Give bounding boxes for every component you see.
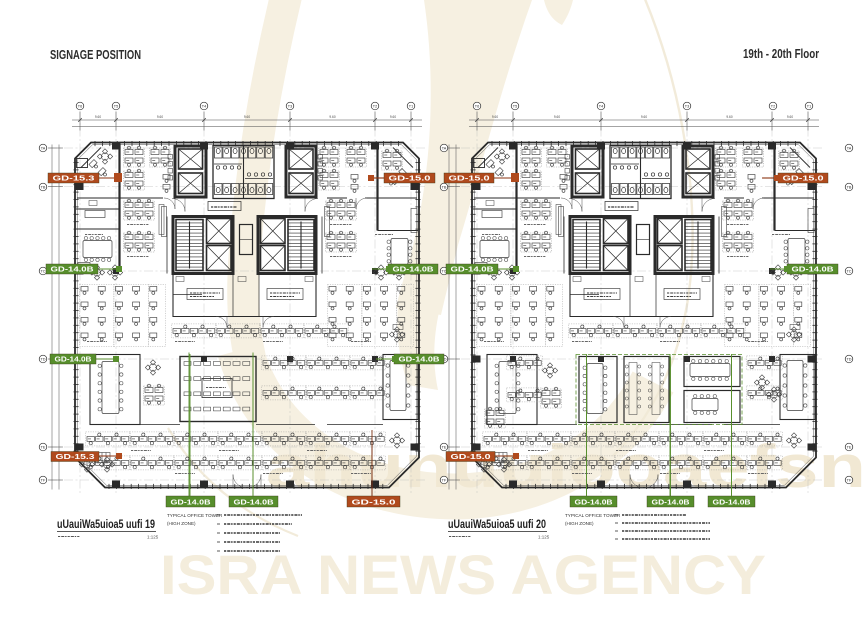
svg-text:T5: T5 <box>114 105 118 109</box>
svg-text:GD-14.0B: GD-14.0B <box>451 264 494 273</box>
svg-text:TB: TB <box>442 186 447 190</box>
svg-text:TYPICAL OFFICE TOWER: TYPICAL OFFICE TOWER <box>167 513 223 518</box>
svg-text:TF: TF <box>847 479 852 483</box>
svg-text:TYPICAL OFFICE TOWER: TYPICAL OFFICE TOWER <box>565 513 621 518</box>
svg-text:T6: T6 <box>78 105 82 109</box>
svg-text:GD-14.0B: GD-14.0B <box>393 264 434 273</box>
svg-text:GD-14.0B: GD-14.0B <box>234 497 274 506</box>
svg-text:19th - 20th Floor: 19th - 20th Floor <box>743 47 819 61</box>
svg-text:uUauiWa5uioa5 uufi 19: uUauiWa5uioa5 uufi 19 <box>57 519 155 531</box>
svg-text:T2: T2 <box>373 105 377 109</box>
svg-text:9.60: 9.60 <box>641 115 647 119</box>
svg-text:TC: TC <box>40 270 45 274</box>
svg-text:T1: T1 <box>807 105 811 109</box>
svg-text:GD-14.0B: GD-14.0B <box>792 264 834 273</box>
svg-text:TF: TF <box>41 479 46 483</box>
svg-text:9.60: 9.60 <box>244 115 250 119</box>
svg-text:SIGNAGE POSITION: SIGNAGE POSITION <box>50 47 141 62</box>
svg-text:T3: T3 <box>685 105 689 109</box>
svg-text:T5: T5 <box>513 105 517 109</box>
svg-text:(HIGH ZONE): (HIGH ZONE) <box>565 521 594 526</box>
svg-text:TA: TA <box>847 147 852 151</box>
svg-text:TB: TB <box>847 186 852 190</box>
svg-text:1:125: 1:125 <box>147 535 159 540</box>
svg-text:T3: T3 <box>288 105 292 109</box>
svg-text:T4: T4 <box>599 105 603 109</box>
svg-text:GD-14.0B: GD-14.0B <box>713 497 751 506</box>
svg-text:GD-14.0B: GD-14.0B <box>55 354 92 363</box>
svg-text:1:125: 1:125 <box>538 535 550 540</box>
svg-text:GD-14.0B: GD-14.0B <box>652 497 690 506</box>
svg-text:TE: TE <box>442 446 447 450</box>
svg-text:TB: TB <box>41 186 46 190</box>
svg-text:9.60: 9.60 <box>95 115 101 119</box>
svg-text:GD-14.0B: GD-14.0B <box>171 497 211 506</box>
svg-text:TE: TE <box>41 446 46 450</box>
svg-text:GD-15.3: GD-15.3 <box>53 173 95 182</box>
svg-text:9.60: 9.60 <box>554 115 560 119</box>
svg-text:9.60: 9.60 <box>492 115 498 119</box>
svg-text:9.60: 9.60 <box>390 115 396 119</box>
svg-text:T4: T4 <box>202 105 206 109</box>
svg-text:T2: T2 <box>771 105 775 109</box>
svg-text:GD-15.0: GD-15.0 <box>352 497 396 506</box>
svg-text:GD-14.0B: GD-14.0B <box>399 354 440 363</box>
svg-text:(HIGH ZONE): (HIGH ZONE) <box>167 521 196 526</box>
svg-text:ahunuuiooaefsn: ahunuuiooaefsn <box>266 433 862 500</box>
svg-text:T6: T6 <box>475 105 479 109</box>
svg-text:TF: TF <box>442 479 447 483</box>
svg-text:GD-15.3: GD-15.3 <box>56 452 95 461</box>
svg-text:T1: T1 <box>409 105 413 109</box>
svg-text:9.60: 9.60 <box>157 115 163 119</box>
svg-text:ISRA NEWS AGENCY: ISRA NEWS AGENCY <box>160 543 766 606</box>
svg-text:GD-15.0: GD-15.0 <box>449 173 490 182</box>
svg-text:TC: TC <box>846 270 851 274</box>
svg-text:GD-15.0: GD-15.0 <box>451 452 491 461</box>
svg-text:uUauiWa5uioa5 uufi 20: uUauiWa5uioa5 uufi 20 <box>448 519 546 531</box>
svg-text:TD: TD <box>40 358 45 362</box>
svg-text:GD-15.0: GD-15.0 <box>783 173 824 182</box>
svg-text:9.60: 9.60 <box>726 115 732 119</box>
svg-text:TE: TE <box>847 446 852 450</box>
svg-text:TA: TA <box>41 147 46 151</box>
svg-text:GD-14.0B: GD-14.0B <box>575 497 613 506</box>
svg-text:TD: TD <box>846 358 851 362</box>
svg-text:9.60: 9.60 <box>787 115 793 119</box>
svg-text:GD-14.0B: GD-14.0B <box>51 264 94 273</box>
svg-text:TA: TA <box>442 147 447 151</box>
svg-text:GD-15.0: GD-15.0 <box>389 173 431 182</box>
svg-text:9.60: 9.60 <box>329 115 335 119</box>
